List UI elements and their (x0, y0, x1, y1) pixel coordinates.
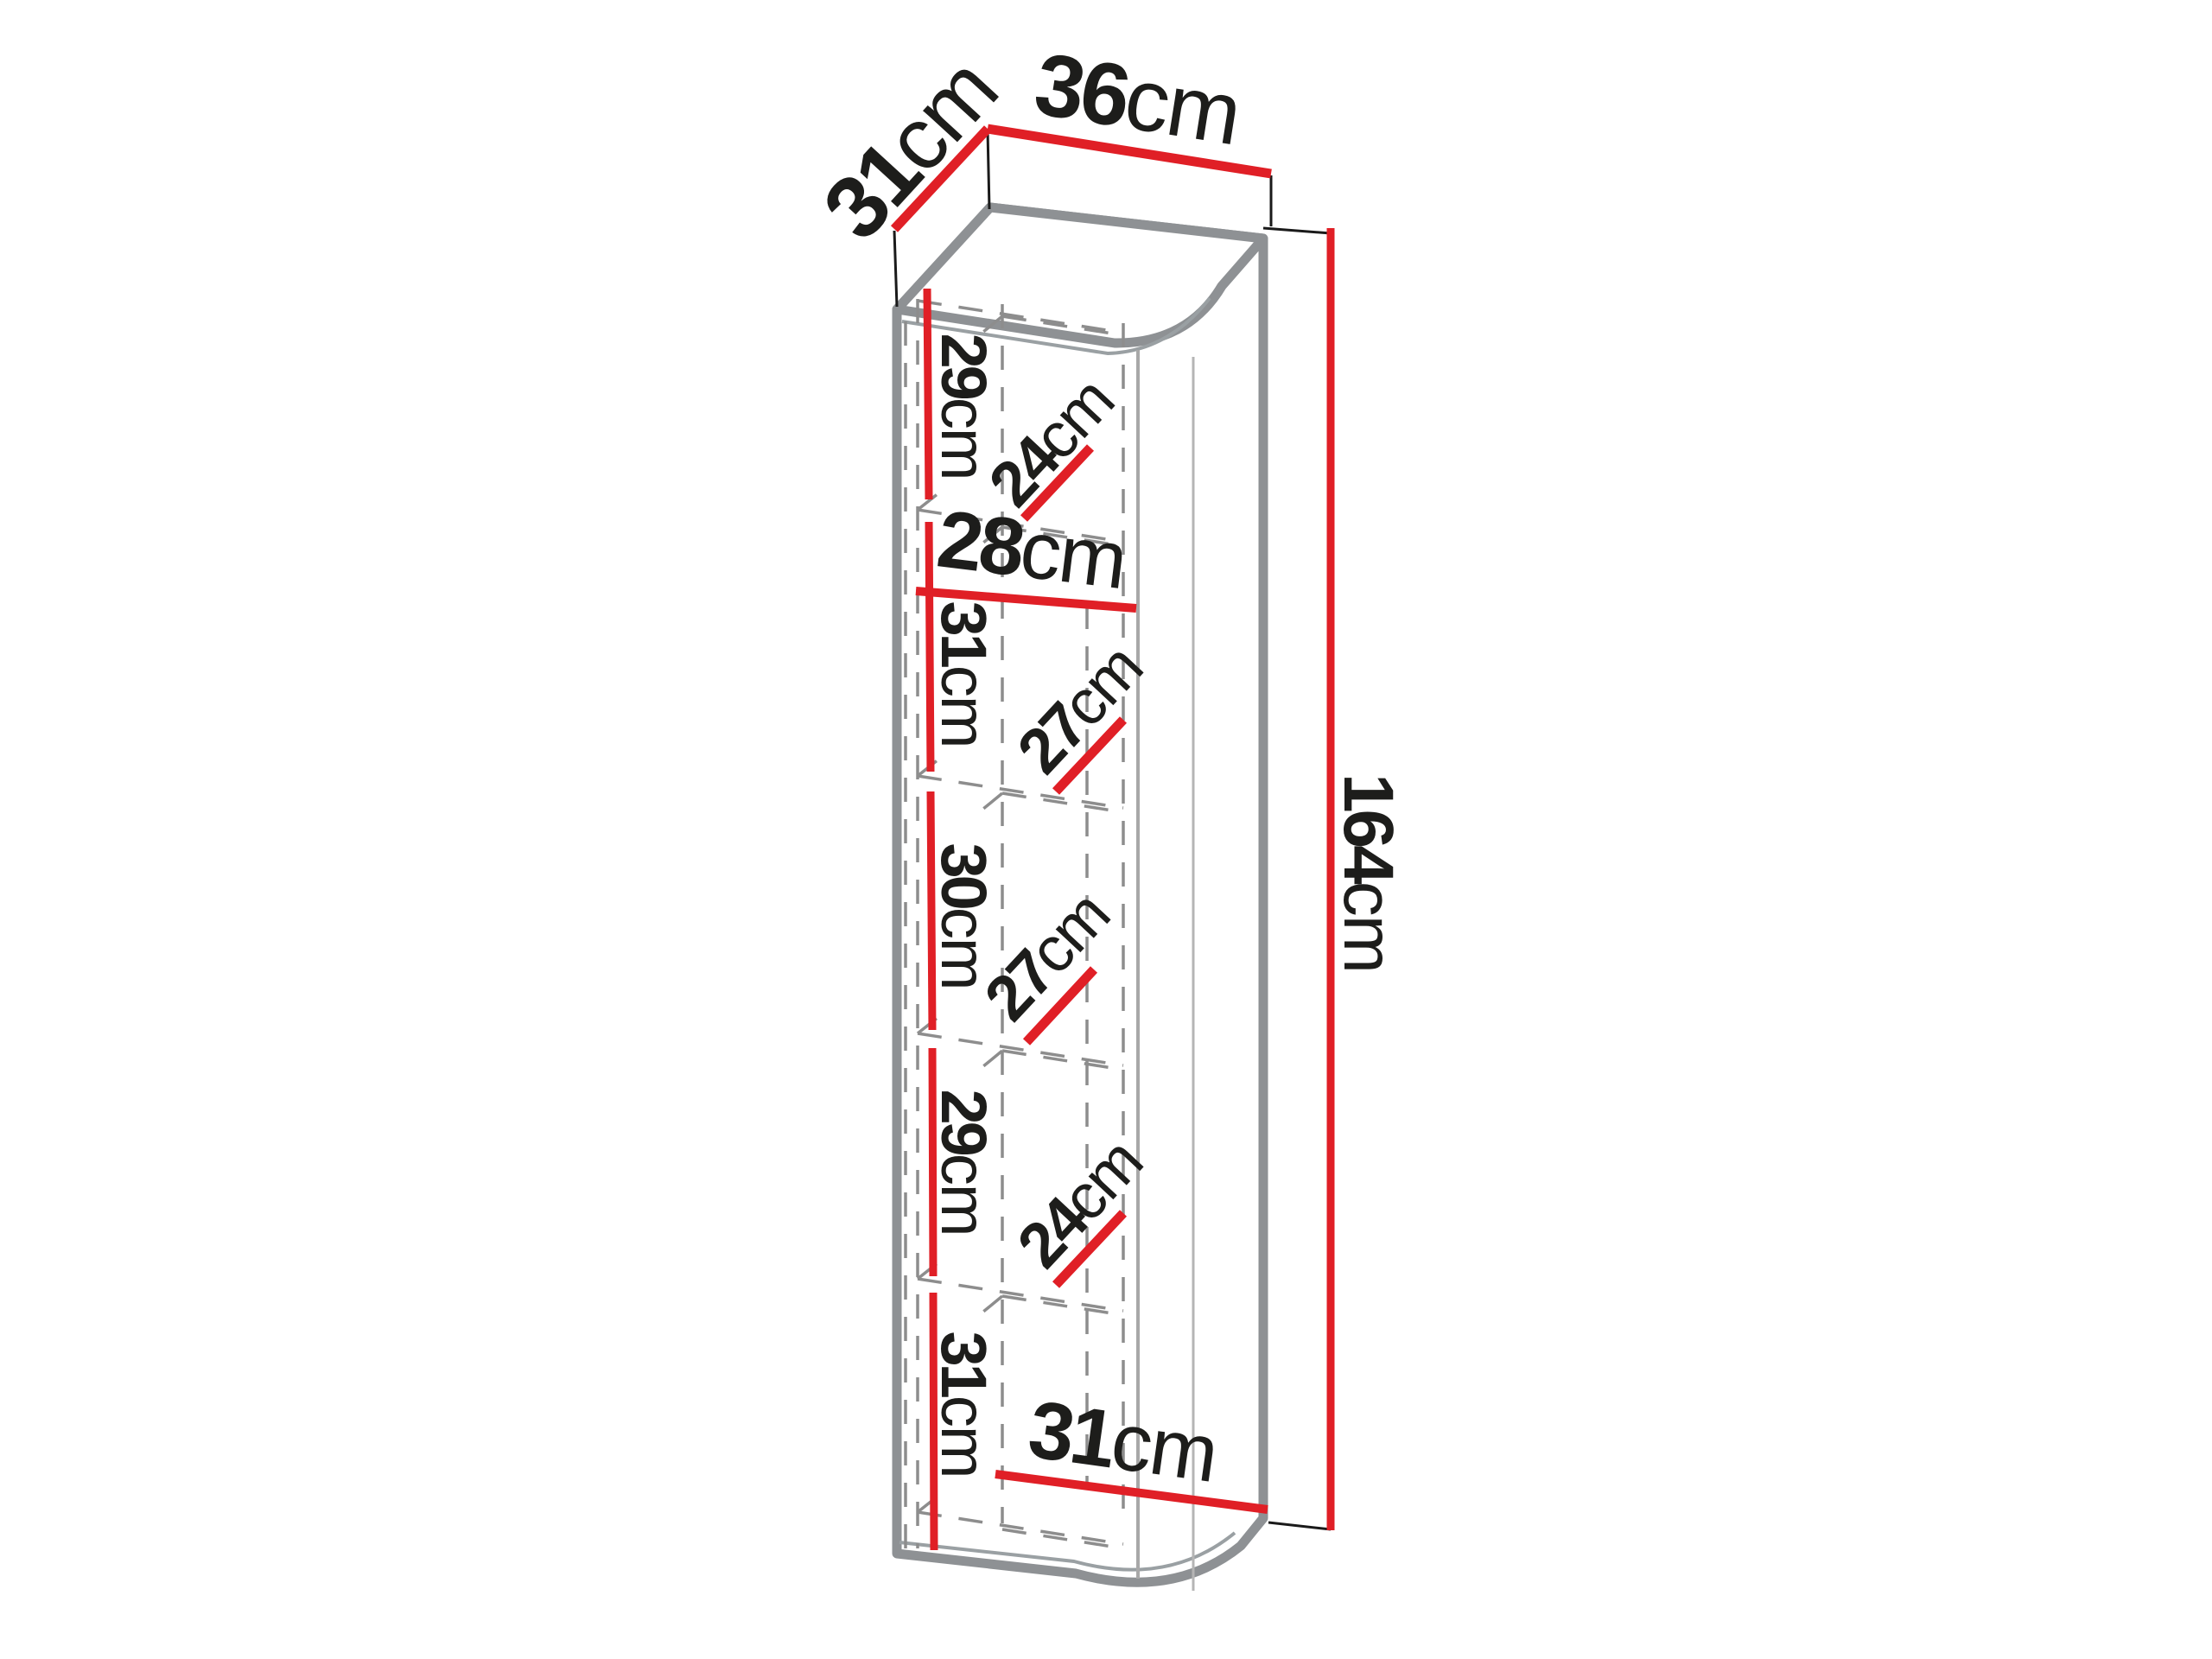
cabinet-dimension-drawing: 31cm 36cm 164cm 29cm 31cm 30cm 29cm 31cm… (0, 0, 2212, 1659)
furniture-dimension-diagram: 31cm 36cm 164cm 29cm 31cm 30cm 29cm 31cm… (0, 0, 2212, 1659)
dim-height-label: 164cm (1329, 773, 1408, 972)
dim-shelf-height-label-5: 31cm (928, 1332, 1000, 1478)
dim-shelf-height-label-2: 31cm (928, 601, 1000, 747)
dim-shelf-height-label-4: 29cm (928, 1090, 1000, 1236)
